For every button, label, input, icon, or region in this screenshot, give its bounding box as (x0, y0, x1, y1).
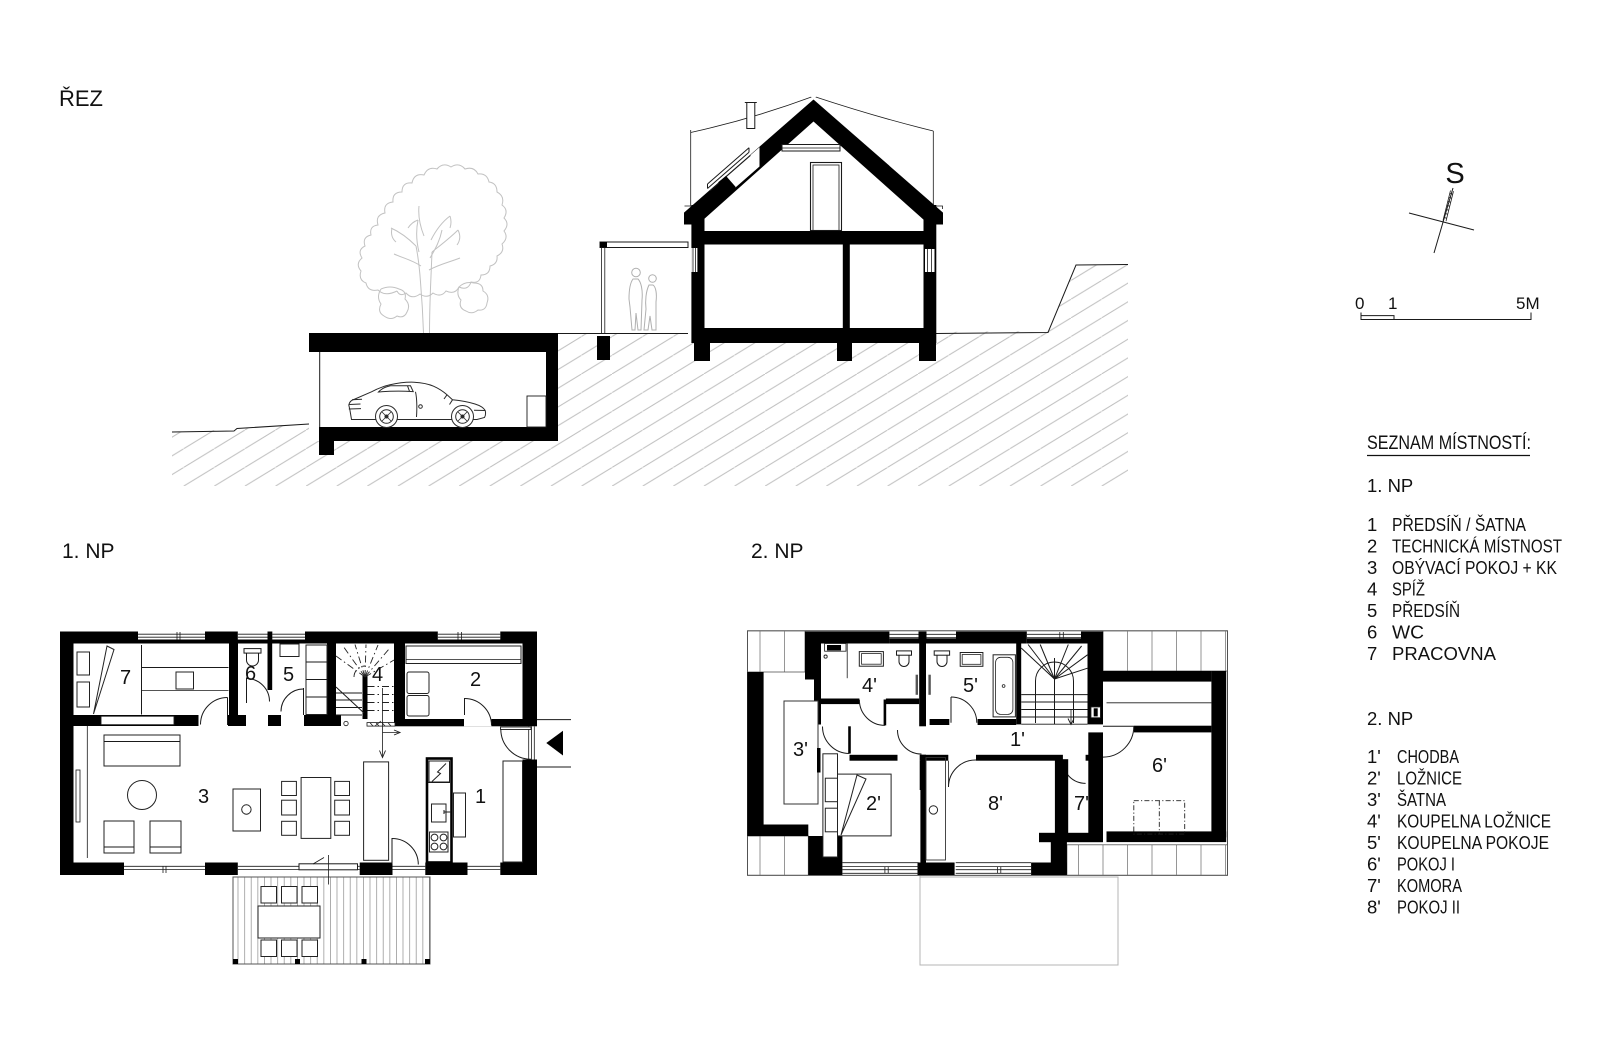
svg-text:ŘEZ: ŘEZ (59, 86, 103, 111)
svg-text:4': 4' (862, 675, 877, 697)
svg-text:CHODBA: CHODBA (1397, 746, 1460, 767)
svg-text:SEZNAM MÍSTNOSTÍ:: SEZNAM MÍSTNOSTÍ: (1367, 433, 1531, 454)
svg-text:5': 5' (1367, 832, 1381, 853)
svg-text:6: 6 (1367, 622, 1377, 643)
svg-text:0: 0 (1355, 294, 1364, 313)
svg-text:TECHNICKÁ MÍSTNOST: TECHNICKÁ MÍSTNOST (1392, 536, 1562, 557)
svg-text:LOŽNICE: LOŽNICE (1397, 768, 1462, 789)
svg-text:POKOJ II: POKOJ II (1397, 897, 1460, 918)
svg-text:7: 7 (120, 667, 131, 689)
svg-text:7': 7' (1074, 793, 1089, 815)
svg-text:KOMORA: KOMORA (1397, 875, 1463, 896)
svg-text:ŠATNA: ŠATNA (1397, 789, 1447, 810)
svg-text:1': 1' (1367, 746, 1381, 767)
svg-text:6': 6' (1152, 755, 1167, 777)
svg-text:PŘEDSÍŇ / ŠATNA: PŘEDSÍŇ / ŠATNA (1392, 514, 1527, 535)
svg-text:4': 4' (1367, 811, 1381, 832)
svg-text:1. NP: 1. NP (1367, 475, 1413, 496)
svg-text:5M: 5M (1516, 294, 1540, 313)
svg-text:1: 1 (475, 786, 486, 808)
svg-text:1': 1' (1010, 729, 1025, 751)
svg-text:KOUPELNA LOŽNICE: KOUPELNA LOŽNICE (1397, 811, 1551, 832)
svg-text:1: 1 (1367, 514, 1377, 535)
svg-text:OBÝVACÍ POKOJ + KK: OBÝVACÍ POKOJ + KK (1392, 557, 1558, 578)
svg-text:2: 2 (470, 669, 481, 691)
svg-text:3: 3 (198, 786, 209, 808)
svg-text:PRACOVNA: PRACOVNA (1392, 643, 1497, 664)
svg-text:6: 6 (245, 663, 256, 685)
svg-text:2: 2 (1367, 536, 1377, 557)
svg-text:WC: WC (1392, 622, 1424, 643)
svg-text:1: 1 (1388, 294, 1397, 313)
svg-text:SPÍŽ: SPÍŽ (1392, 579, 1425, 600)
svg-text:3': 3' (1367, 789, 1381, 810)
svg-text:5: 5 (1367, 600, 1377, 621)
svg-text:1. NP: 1. NP (62, 540, 115, 563)
svg-text:4: 4 (1367, 579, 1377, 600)
svg-text:7: 7 (1367, 643, 1377, 664)
svg-text:7': 7' (1367, 875, 1381, 896)
svg-text:2. NP: 2. NP (1367, 708, 1413, 729)
svg-text:4: 4 (372, 664, 383, 686)
svg-text:KOUPELNA POKOJE: KOUPELNA POKOJE (1397, 832, 1549, 853)
svg-text:2': 2' (1367, 768, 1381, 789)
svg-text:8': 8' (988, 793, 1003, 815)
svg-text:6': 6' (1367, 854, 1381, 875)
svg-text:S: S (1445, 158, 1464, 190)
svg-text:POKOJ I: POKOJ I (1397, 854, 1455, 875)
svg-text:PŘEDSÍŇ: PŘEDSÍŇ (1392, 600, 1460, 621)
svg-text:2. NP: 2. NP (751, 540, 804, 563)
svg-text:8': 8' (1367, 897, 1381, 918)
svg-text:3': 3' (793, 739, 808, 761)
svg-text:5': 5' (963, 675, 978, 697)
svg-text:3: 3 (1367, 557, 1377, 578)
svg-text:5: 5 (283, 664, 294, 686)
svg-text:2': 2' (866, 793, 881, 815)
